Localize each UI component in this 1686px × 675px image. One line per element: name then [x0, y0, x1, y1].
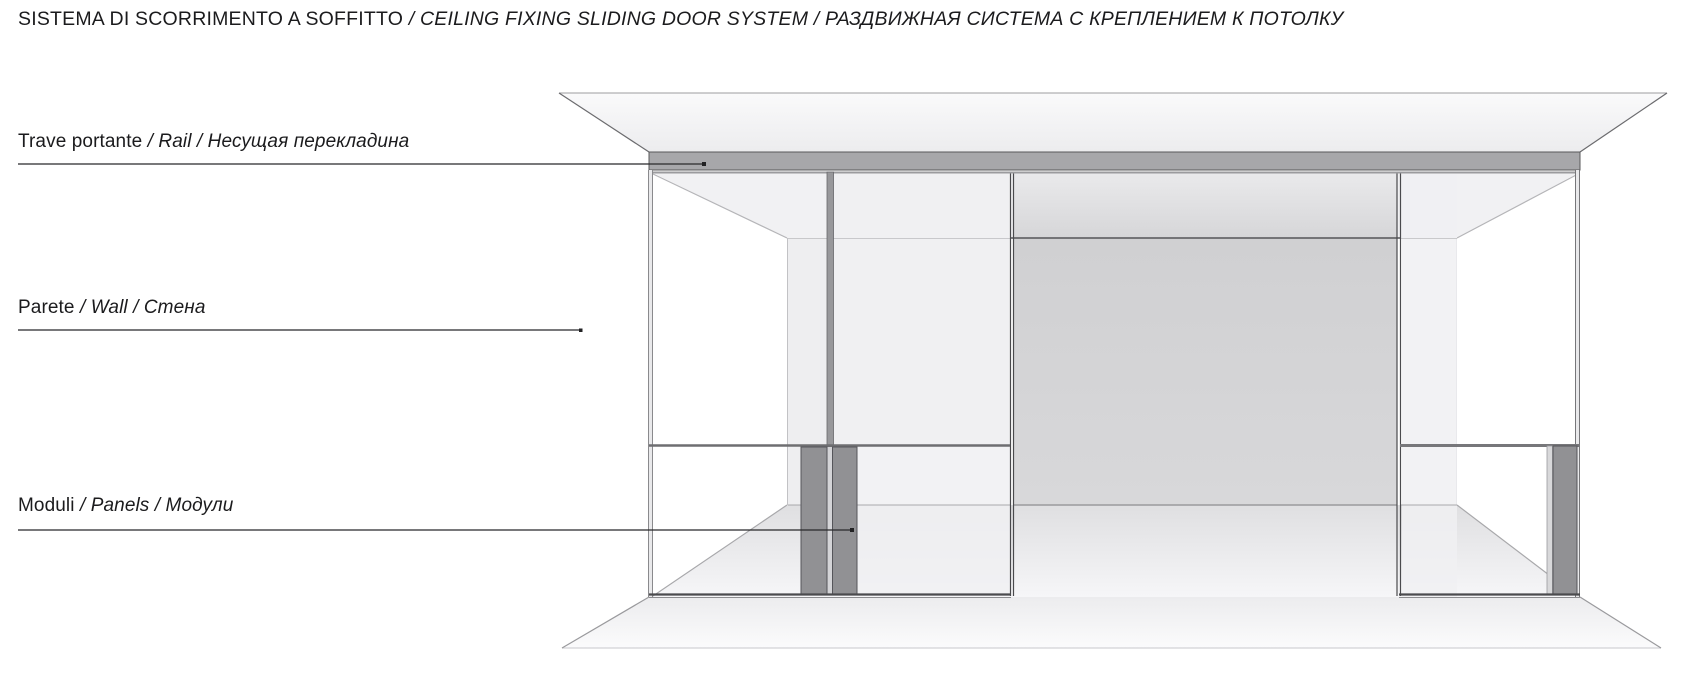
sliding-door-system-diagram [0, 0, 1686, 675]
panel-right-strip [1402, 173, 1457, 597]
page-title-secondary: / CEILING FIXING SLIDING DOOR SYSTEM / Р… [403, 8, 1343, 30]
callout-panels-secondary: / Panels / Модули [75, 495, 234, 516]
wall-left-edge [648, 170, 653, 597]
callout-panels-primary: Moduli [18, 495, 75, 516]
module-dark-right [1553, 446, 1577, 595]
callout-rail-secondary: / Rail / Несущая перекладина [142, 131, 409, 152]
callout-wall-primary: Parete [18, 297, 75, 318]
callout-wall: Parete / Wall / Стена [18, 296, 206, 319]
opening-far-ceiling [1013, 172, 1397, 238]
door-post [827, 172, 834, 447]
module-dark-left-2 [833, 447, 858, 595]
panel-upper-left [834, 173, 1010, 447]
rail-bar [649, 152, 1580, 170]
callout-rail-primary: Trave portante [18, 131, 142, 152]
page-title-primary: SISTEMA DI SCORRIMENTO A SOFFITTO [18, 8, 403, 30]
panel-lower-middle [857, 447, 1010, 596]
leader-dot-rail [702, 162, 706, 166]
callout-rail: Trave portante / Rail / Несущая переклад… [18, 130, 409, 153]
leader-dot-wall [579, 329, 583, 333]
module-gap [827, 447, 833, 595]
ceiling-plane [559, 93, 1667, 152]
callout-wall-secondary: / Wall / Стена [75, 297, 206, 318]
page-title: SISTEMA DI SCORRIMENTO A SOFFITTO / CEIL… [18, 8, 1343, 31]
module-dark-left-1 [801, 447, 827, 595]
floor-plane [562, 597, 1661, 648]
module-light-right [1547, 446, 1553, 595]
opening-back-wall [1013, 238, 1397, 505]
leader-dot-panels [850, 528, 854, 532]
callout-panels: Moduli / Panels / Модули [18, 494, 233, 517]
